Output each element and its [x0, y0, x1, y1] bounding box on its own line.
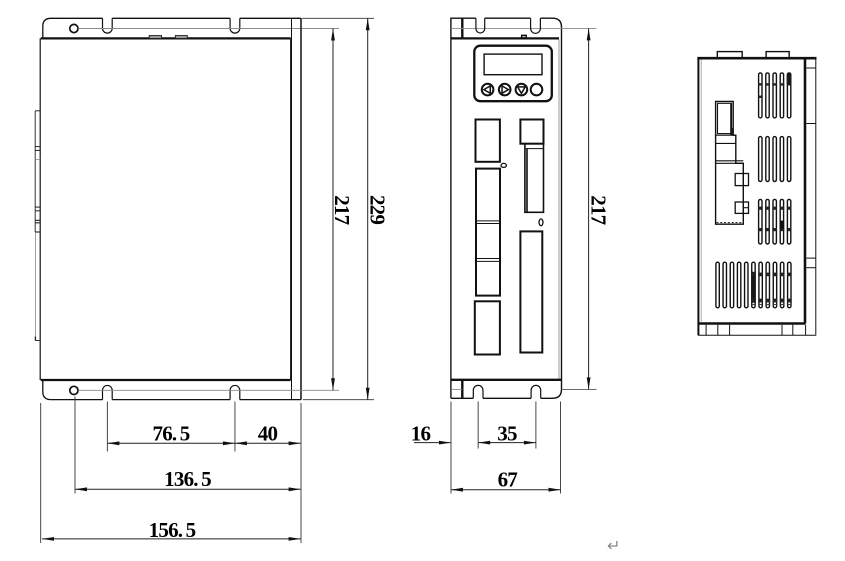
svg-text:217: 217 — [330, 195, 354, 224]
svg-text:35: 35 — [497, 421, 517, 445]
svg-text:217: 217 — [587, 195, 611, 224]
svg-text:16: 16 — [411, 421, 431, 445]
svg-text:136. 5: 136. 5 — [164, 467, 211, 491]
svg-text:156. 5: 156. 5 — [149, 518, 196, 542]
svg-text:229: 229 — [366, 195, 390, 224]
svg-text:40: 40 — [258, 421, 278, 445]
svg-text:67: 67 — [498, 467, 518, 491]
svg-text:76. 5: 76. 5 — [153, 421, 190, 445]
svg-text:↵: ↵ — [607, 538, 620, 555]
